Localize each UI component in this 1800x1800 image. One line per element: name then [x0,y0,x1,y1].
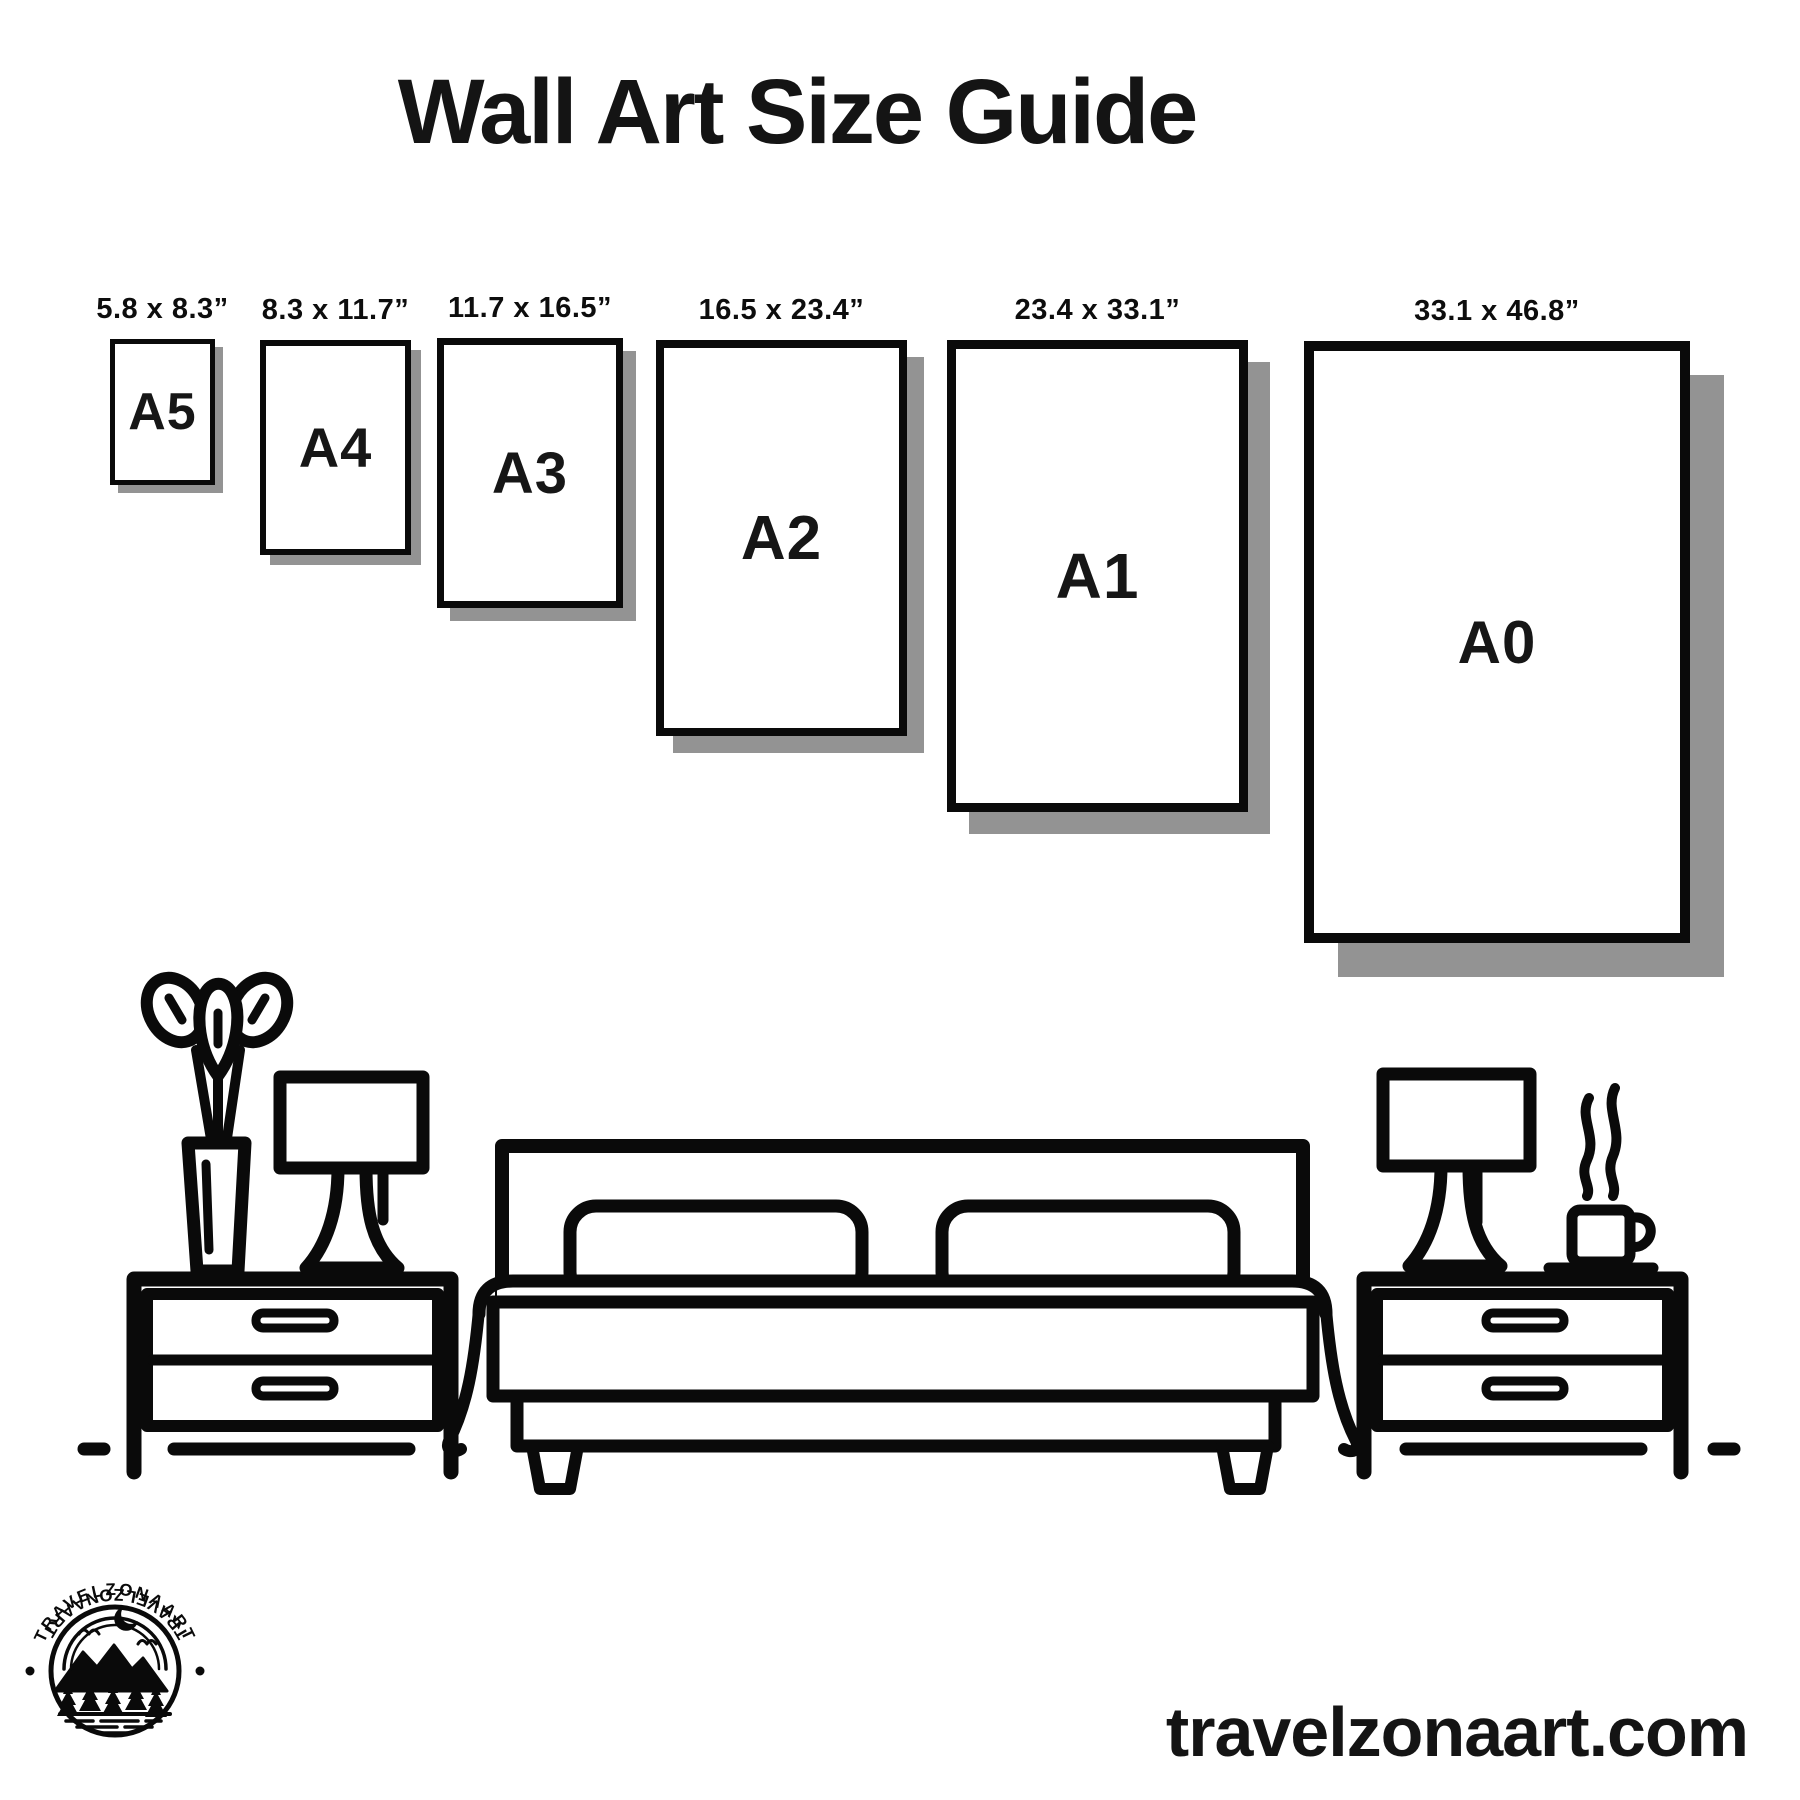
bedroom-scene: TRAVELZONAART TRAVELZONAART [0,0,1800,1800]
table-lamp-left-icon [280,1077,423,1268]
mountains-icon [55,1645,167,1691]
brand-badge: TRAVELZONAART TRAVELZONAART [26,1580,205,1735]
coffee-cup-icon [1549,1088,1653,1268]
table-lamp-right-icon [1383,1074,1530,1266]
wall-art-size-guide-page: Wall Art Size Guide 5.8 x 8.3” A5 8.3 x … [0,0,1800,1800]
bed-icon [448,1146,1357,1489]
website-url: travelzonaart.com [1166,1692,1748,1772]
